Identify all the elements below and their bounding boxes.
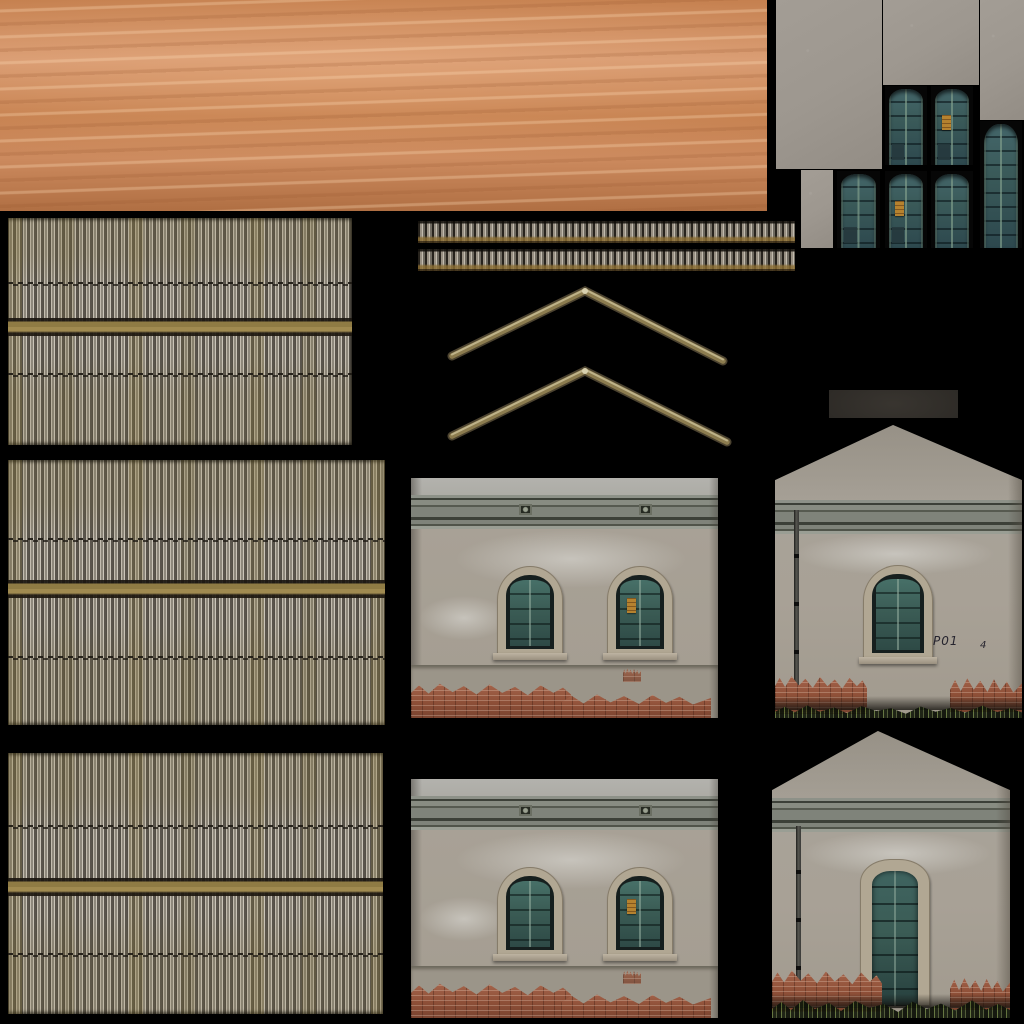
roof-overlap-line [8, 282, 352, 286]
door-leaves [889, 89, 923, 165]
roof-overlap-line [8, 373, 352, 377]
gable-cornice [772, 798, 1010, 832]
roof-overlap-line [8, 825, 383, 829]
texture-atlas: P01 4 [0, 0, 1024, 1024]
gable-cornice [775, 500, 1022, 534]
green-door-tile-5 [931, 171, 973, 248]
stucco-patch-small [801, 170, 833, 248]
window-shutters [876, 579, 920, 650]
graffiti-mark: 4 [980, 641, 987, 651]
roof-ridge-chevrons [440, 278, 740, 454]
green-door-tile-4 [885, 171, 927, 248]
green-door-tile-tall [980, 121, 1022, 248]
roof-eave-strip-1 [418, 221, 795, 243]
roof-ridge-chevron-2 [452, 368, 727, 442]
door-dark-panel [892, 227, 904, 243]
window-sill [603, 653, 677, 660]
roof-ochre-seam [8, 878, 383, 896]
stucco-patch-large [776, 0, 882, 169]
corner-pilaster-shading [1008, 425, 1022, 718]
ridge-apex-joint [582, 288, 588, 294]
green-door-tile-2 [931, 86, 973, 165]
door-poster [895, 201, 904, 216]
window-sill [493, 954, 567, 961]
gable-facade-window: P01 4 [775, 425, 1022, 718]
downpipe [796, 826, 801, 1001]
door-dark-panel [938, 144, 950, 160]
green-door-tile-3 [837, 171, 880, 248]
arched-window-right [607, 867, 673, 955]
roof-ridge-chevron-1 [452, 288, 723, 361]
dark-plate [829, 390, 958, 418]
window-shutters [510, 881, 550, 947]
roof-ochre-seam [8, 580, 385, 598]
door-leaves [984, 124, 1018, 248]
arched-window-left [497, 867, 563, 955]
roof-eave-strip-2 [418, 249, 795, 271]
cornice-vent [639, 805, 652, 816]
arched-window [863, 565, 933, 658]
door-poster [942, 115, 951, 130]
window-sill [603, 954, 677, 961]
window-poster [627, 598, 636, 613]
corrugated-roof-texture-2 [8, 460, 385, 725]
stucco-patch-wide [883, 0, 979, 85]
gable-facade-door [772, 731, 1010, 1018]
door-dark-panel [892, 144, 904, 160]
cornice-vent [519, 805, 532, 816]
window-sill [493, 653, 567, 660]
window-shutters [510, 580, 550, 646]
corner-pilaster-shading [996, 731, 1010, 1018]
facade-cornice [411, 796, 718, 830]
whitewash-stain [419, 596, 509, 640]
door-leaves [841, 174, 876, 248]
roof-overlap-line [8, 656, 385, 660]
roof-overlap-line [8, 538, 385, 542]
facade-cornice [411, 495, 718, 529]
roof-overlap-line [8, 953, 383, 957]
corrugated-roof-texture-3 [8, 753, 383, 1014]
arched-window-right [607, 566, 673, 654]
roof-ochre-seam [8, 318, 352, 336]
door-leaves [935, 174, 969, 248]
window-poster [627, 899, 636, 914]
downpipe [794, 510, 799, 700]
whitewash-stain [419, 897, 509, 941]
graffiti-text: P01 [933, 635, 959, 647]
corrugated-roof-texture-1 [8, 218, 352, 445]
two-window-facade-2 [411, 779, 718, 1018]
door-dark-panel [844, 227, 857, 243]
door-leaves [889, 174, 923, 248]
green-door-tile-1 [885, 86, 927, 165]
dirt-ground-texture [0, 0, 767, 211]
stucco-patch-tall [980, 0, 1024, 120]
window-sill [859, 657, 937, 664]
two-window-facade-1 [411, 478, 718, 718]
cornice-vent [639, 504, 652, 515]
window-shutters [620, 580, 660, 646]
door-leaves [935, 89, 969, 165]
ridge-apex-joint [582, 368, 588, 374]
window-shutters [620, 881, 660, 947]
arched-window-left [497, 566, 563, 654]
cornice-vent [519, 504, 532, 515]
